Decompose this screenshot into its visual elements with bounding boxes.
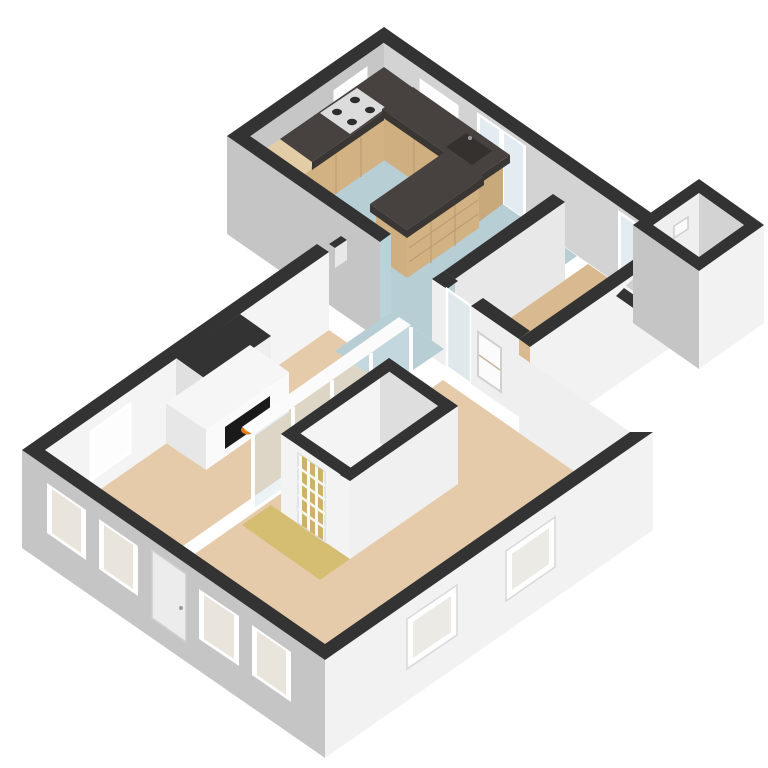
tongue-jamb [380, 234, 391, 320]
floorplan-3d-view [0, 0, 768, 768]
hall-living-door-glass [447, 289, 471, 384]
burner [347, 119, 357, 125]
floorplan-stage [0, 0, 768, 768]
burner [332, 109, 342, 115]
door-pane-col [310, 462, 315, 535]
burner [365, 107, 375, 113]
french-door-right-glass [504, 133, 523, 217]
door-pane-col [318, 467, 323, 540]
door-pane-col [302, 456, 307, 529]
burner [350, 97, 360, 103]
faucet [468, 136, 472, 140]
